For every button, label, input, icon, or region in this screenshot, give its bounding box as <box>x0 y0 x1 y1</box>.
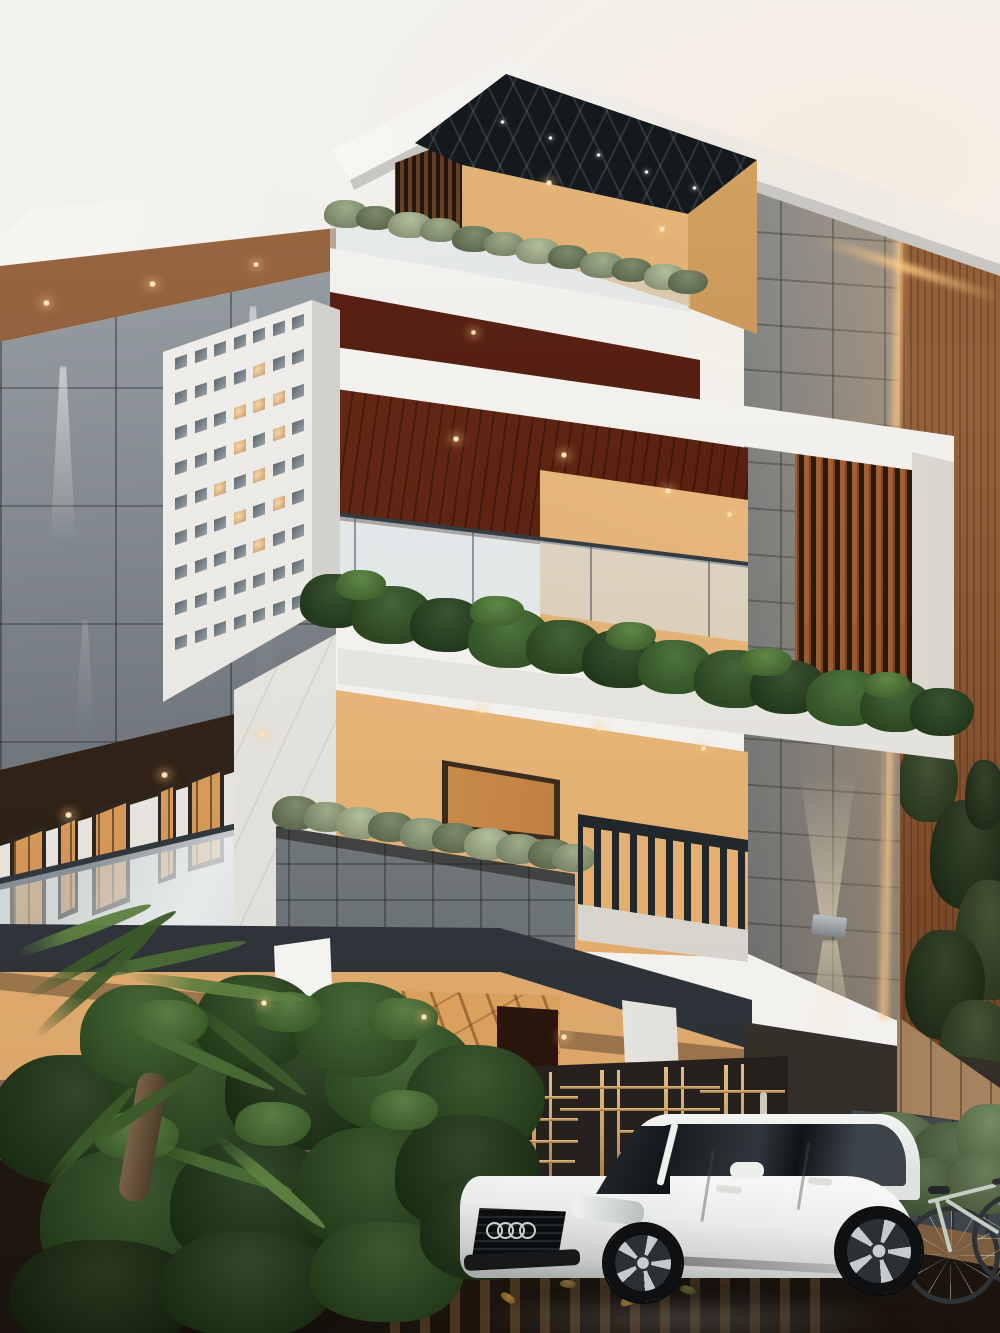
recessed-light <box>500 120 505 124</box>
recessed-light <box>160 772 169 778</box>
recessed-lights-layer <box>0 0 1000 1333</box>
recessed-light <box>258 732 266 737</box>
recessed-light <box>545 180 553 186</box>
recessed-light <box>726 512 733 517</box>
recessed-light <box>478 708 485 713</box>
recessed-light <box>596 726 603 731</box>
recessed-light <box>700 746 707 751</box>
scene-render <box>0 0 1000 1333</box>
recessed-light <box>548 136 553 140</box>
recessed-light <box>560 1034 568 1040</box>
recessed-light <box>452 436 460 442</box>
recessed-light <box>64 812 73 818</box>
recessed-light <box>420 1014 428 1020</box>
recessed-light <box>260 1000 268 1006</box>
recessed-light <box>560 452 568 458</box>
recessed-light <box>664 488 672 494</box>
recessed-light <box>596 153 601 157</box>
recessed-light <box>692 186 697 190</box>
recessed-light <box>658 226 666 232</box>
recessed-light <box>644 170 649 174</box>
recessed-light <box>148 281 157 287</box>
recessed-light <box>252 262 260 267</box>
recessed-light <box>42 300 51 306</box>
recessed-light <box>470 330 477 335</box>
